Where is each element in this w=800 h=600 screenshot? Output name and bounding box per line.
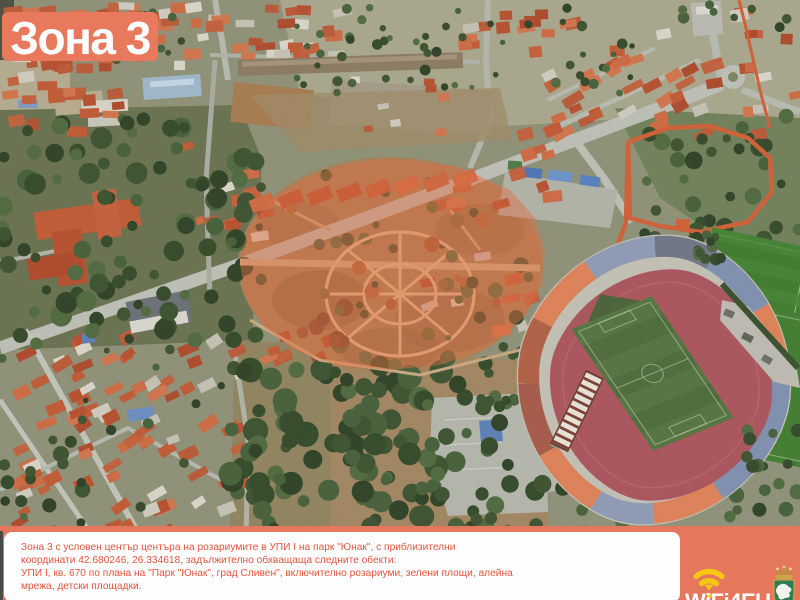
svg-text:WiFi4EU: WiFi4EU <box>685 589 771 600</box>
